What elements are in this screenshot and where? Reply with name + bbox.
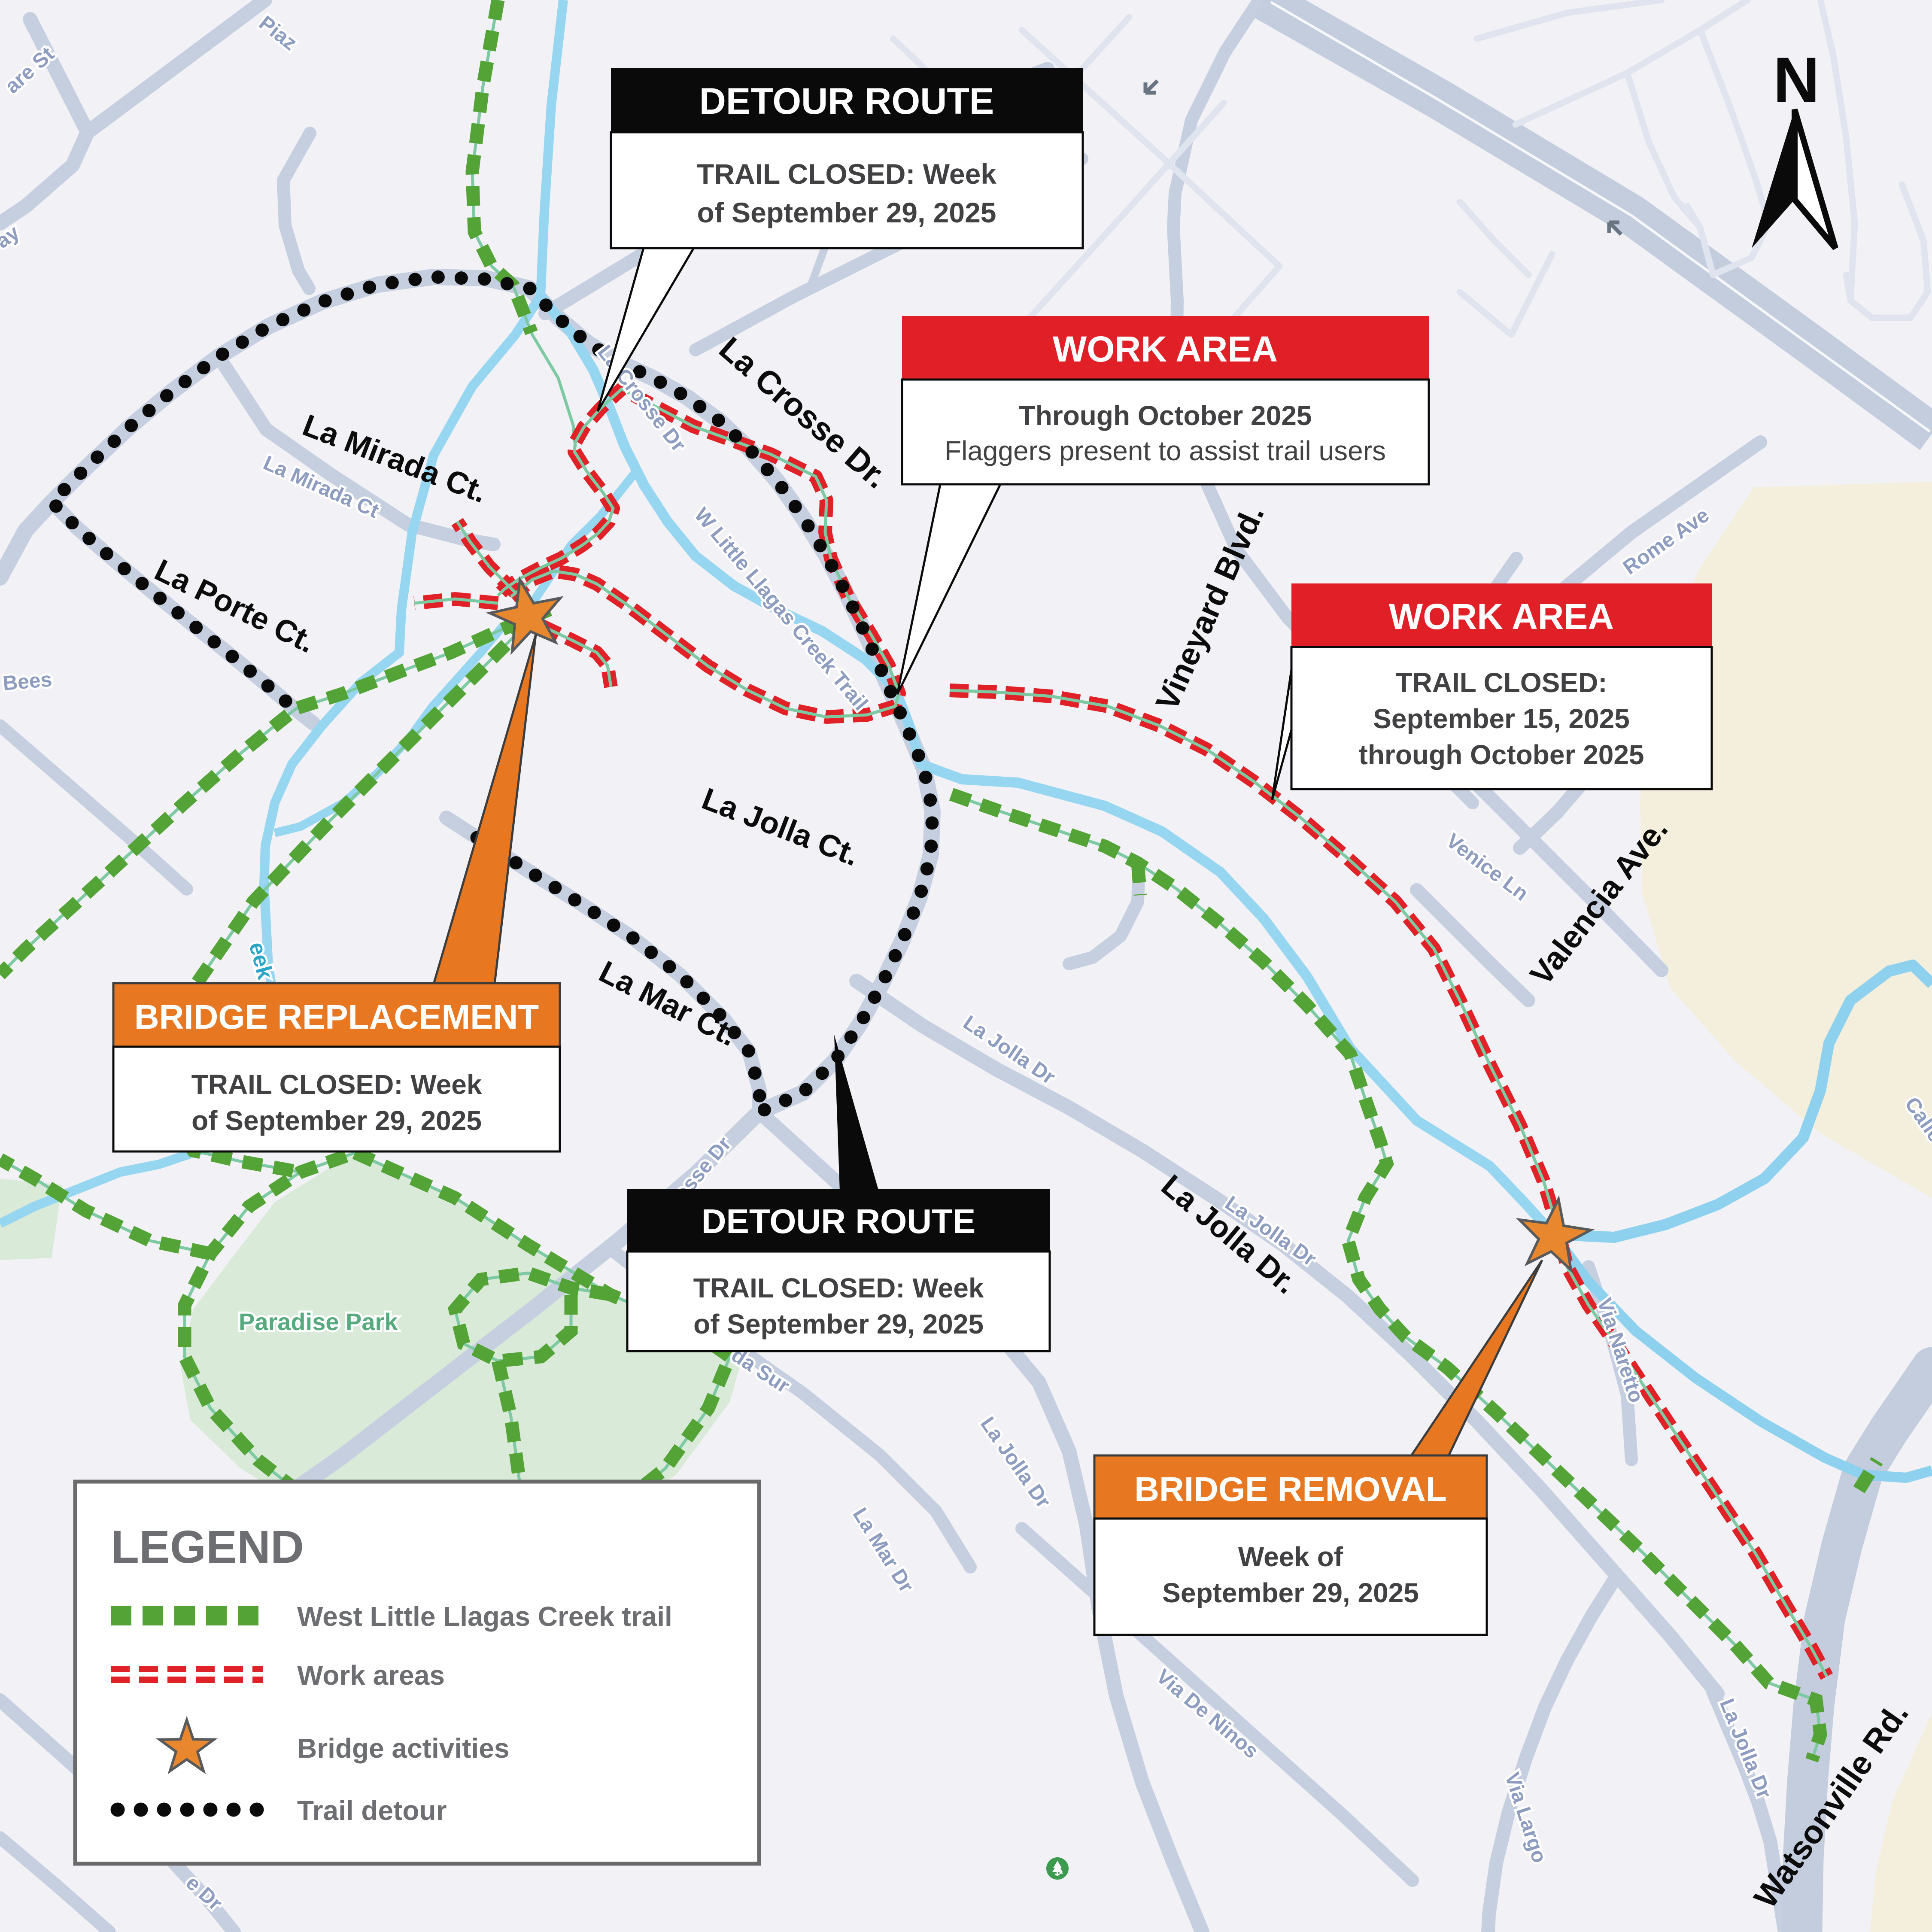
svg-text:Through October 2025: Through October 2025 xyxy=(1019,400,1312,431)
svg-text:TRAIL CLOSED: Week: TRAIL CLOSED: Week xyxy=(191,1069,482,1100)
svg-text:Work areas: Work areas xyxy=(297,1660,445,1691)
svg-text:September 15, 2025: September 15, 2025 xyxy=(1373,703,1630,734)
svg-text:LEGEND: LEGEND xyxy=(111,1521,304,1573)
svg-text:BRIDGE REPLACEMENT: BRIDGE REPLACEMENT xyxy=(134,998,539,1036)
svg-text:TRAIL CLOSED: Week: TRAIL CLOSED: Week xyxy=(697,158,996,190)
svg-text:WORK AREA: WORK AREA xyxy=(1389,596,1614,637)
svg-text:TRAIL CLOSED:: TRAIL CLOSED: xyxy=(1395,667,1607,698)
svg-text:Trail detour: Trail detour xyxy=(297,1795,447,1826)
svg-text:Bees: Bees xyxy=(2,668,53,695)
svg-text:September 29, 2025: September 29, 2025 xyxy=(1162,1577,1419,1608)
svg-text:N: N xyxy=(1773,44,1820,116)
svg-text:Paradise Park: Paradise Park xyxy=(239,1308,398,1335)
svg-text:of September 29, 2025: of September 29, 2025 xyxy=(693,1309,984,1340)
svg-text:TRAIL CLOSED: Week: TRAIL CLOSED: Week xyxy=(693,1273,984,1303)
svg-text:Flaggers present to assist tra: Flaggers present to assist trail users xyxy=(945,435,1386,466)
svg-text:West Little Llagas Creek trail: West Little Llagas Creek trail xyxy=(297,1601,672,1632)
svg-text:of September 29, 2025: of September 29, 2025 xyxy=(697,197,996,228)
svg-text:through October 2025: through October 2025 xyxy=(1359,739,1644,770)
svg-text:BRIDGE REMOVAL: BRIDGE REMOVAL xyxy=(1134,1470,1446,1508)
svg-text:of September 29, 2025: of September 29, 2025 xyxy=(191,1105,482,1136)
svg-text:DETOUR ROUTE: DETOUR ROUTE xyxy=(699,81,994,122)
svg-text:WORK AREA: WORK AREA xyxy=(1053,329,1278,369)
svg-text:Week of: Week of xyxy=(1238,1541,1343,1572)
svg-text:DETOUR ROUTE: DETOUR ROUTE xyxy=(702,1202,976,1240)
svg-text:Bridge activities: Bridge activities xyxy=(297,1733,509,1764)
